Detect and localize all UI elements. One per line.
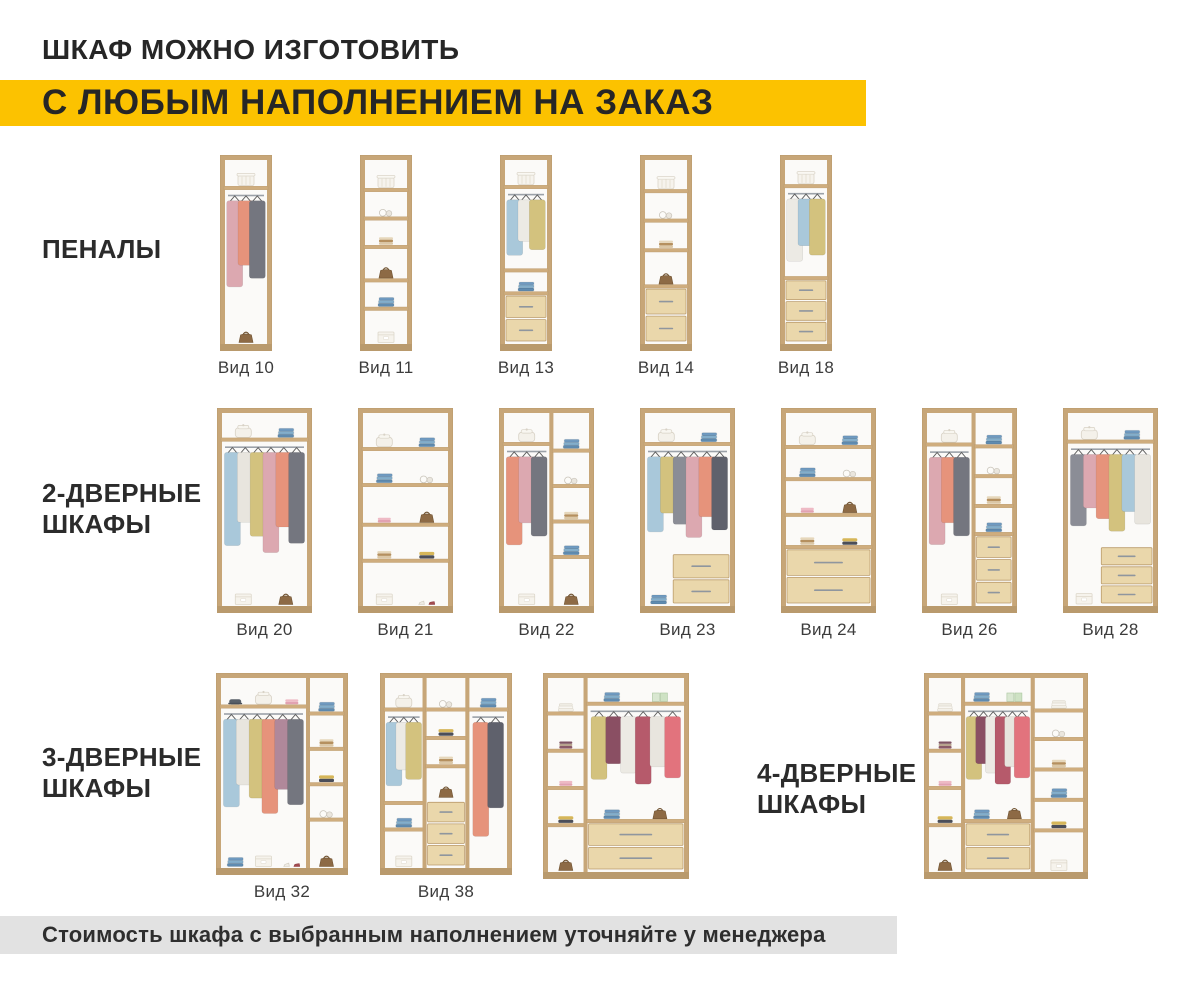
wardrobe-illustration — [543, 673, 689, 879]
section-label-3-door: 3-ДВЕРНЫЕ ШКАФЫ — [42, 742, 201, 804]
wardrobe-illustration — [781, 408, 876, 613]
wardrobe-caption: Вид 14 — [638, 358, 694, 378]
wardrobe-illustration — [1063, 408, 1158, 613]
wardrobe-caption: Вид 21 — [377, 620, 433, 640]
catalog-poster: ШКАФ МОЖНО ИЗГОТОВИТЬ С ЛЮБЫМ НАПОЛНЕНИЕ… — [0, 0, 1200, 1000]
wardrobe-illustration — [922, 408, 1017, 613]
page-title: ШКАФ МОЖНО ИЗГОТОВИТЬ — [42, 34, 459, 66]
wardrobe-figure: Вид 10 — [176, 155, 316, 378]
wardrobe-illustration — [358, 408, 453, 613]
wardrobe-caption: Вид 24 — [800, 620, 856, 640]
wardrobe-caption: Вид 18 — [778, 358, 834, 378]
title-highlight-bar: С ЛЮБЫМ НАПОЛНЕНИЕМ НА ЗАКАЗ — [0, 80, 866, 126]
wardrobe-illustration — [220, 155, 272, 351]
title-highlight-text: С ЛЮБЫМ НАПОЛНЕНИЕМ НА ЗАКАЗ — [42, 83, 713, 123]
wardrobe-caption: Вид 28 — [1082, 620, 1138, 640]
wardrobe-caption: Вид 22 — [518, 620, 574, 640]
footer-bar: Стоимость шкафа с выбранным наполнением … — [0, 916, 897, 954]
wardrobe-figure: Вид 21 — [335, 408, 476, 640]
wardrobe-figure: Вид 28 — [1040, 408, 1181, 640]
wardrobe-illustration — [780, 155, 832, 351]
wardrobe-figure: Вид 32 — [200, 673, 364, 902]
wardrobe-illustration — [924, 673, 1088, 879]
wardrobe-caption: Вид 20 — [236, 620, 292, 640]
wardrobe-caption: Вид 23 — [659, 620, 715, 640]
wardrobe-group-pencil-cabinets: Вид 10Вид 11Вид 13Вид 14Вид 18 — [176, 155, 876, 378]
section-label-pencil-cabinets: ПЕНАЛЫ — [42, 234, 161, 265]
wardrobe-figure: Вид 38 — [364, 673, 528, 902]
wardrobe-figure — [528, 673, 704, 906]
wardrobe-figure: Вид 22 — [476, 408, 617, 640]
wardrobe-figure: Вид 11 — [316, 155, 456, 378]
wardrobe-group-2-door: Вид 20Вид 21Вид 22Вид 23Вид 24Вид 26Вид … — [194, 408, 1181, 640]
wardrobe-figure: Вид 26 — [899, 408, 1040, 640]
wardrobe-group-4-door — [917, 673, 1095, 906]
wardrobe-illustration — [360, 155, 412, 351]
wardrobe-caption: Вид 32 — [254, 882, 310, 902]
section-label-4-door: 4-ДВЕРНЫЕ ШКАФЫ — [757, 758, 916, 820]
wardrobe-figure — [917, 673, 1095, 906]
wardrobe-caption: Вид 10 — [218, 358, 274, 378]
wardrobe-figure: Вид 14 — [596, 155, 736, 378]
wardrobe-group-3-door: Вид 32Вид 38 — [200, 673, 704, 906]
wardrobe-illustration — [216, 673, 348, 875]
wardrobe-illustration — [499, 408, 594, 613]
section-label-2-door: 2-ДВЕРНЫЕ ШКАФЫ — [42, 478, 201, 540]
wardrobe-caption: Вид 11 — [359, 358, 414, 378]
wardrobe-illustration — [640, 408, 735, 613]
wardrobe-figure: Вид 13 — [456, 155, 596, 378]
wardrobe-figure: Вид 24 — [758, 408, 899, 640]
wardrobe-illustration — [217, 408, 312, 613]
wardrobe-caption: Вид 13 — [498, 358, 554, 378]
wardrobe-caption: Вид 38 — [418, 882, 474, 902]
wardrobe-figure: Вид 23 — [617, 408, 758, 640]
wardrobe-figure: Вид 20 — [194, 408, 335, 640]
wardrobe-illustration — [640, 155, 692, 351]
footer-note: Стоимость шкафа с выбранным наполнением … — [42, 922, 826, 948]
wardrobe-caption: Вид 26 — [941, 620, 997, 640]
wardrobe-illustration — [380, 673, 512, 875]
wardrobe-figure: Вид 18 — [736, 155, 876, 378]
wardrobe-illustration — [500, 155, 552, 351]
